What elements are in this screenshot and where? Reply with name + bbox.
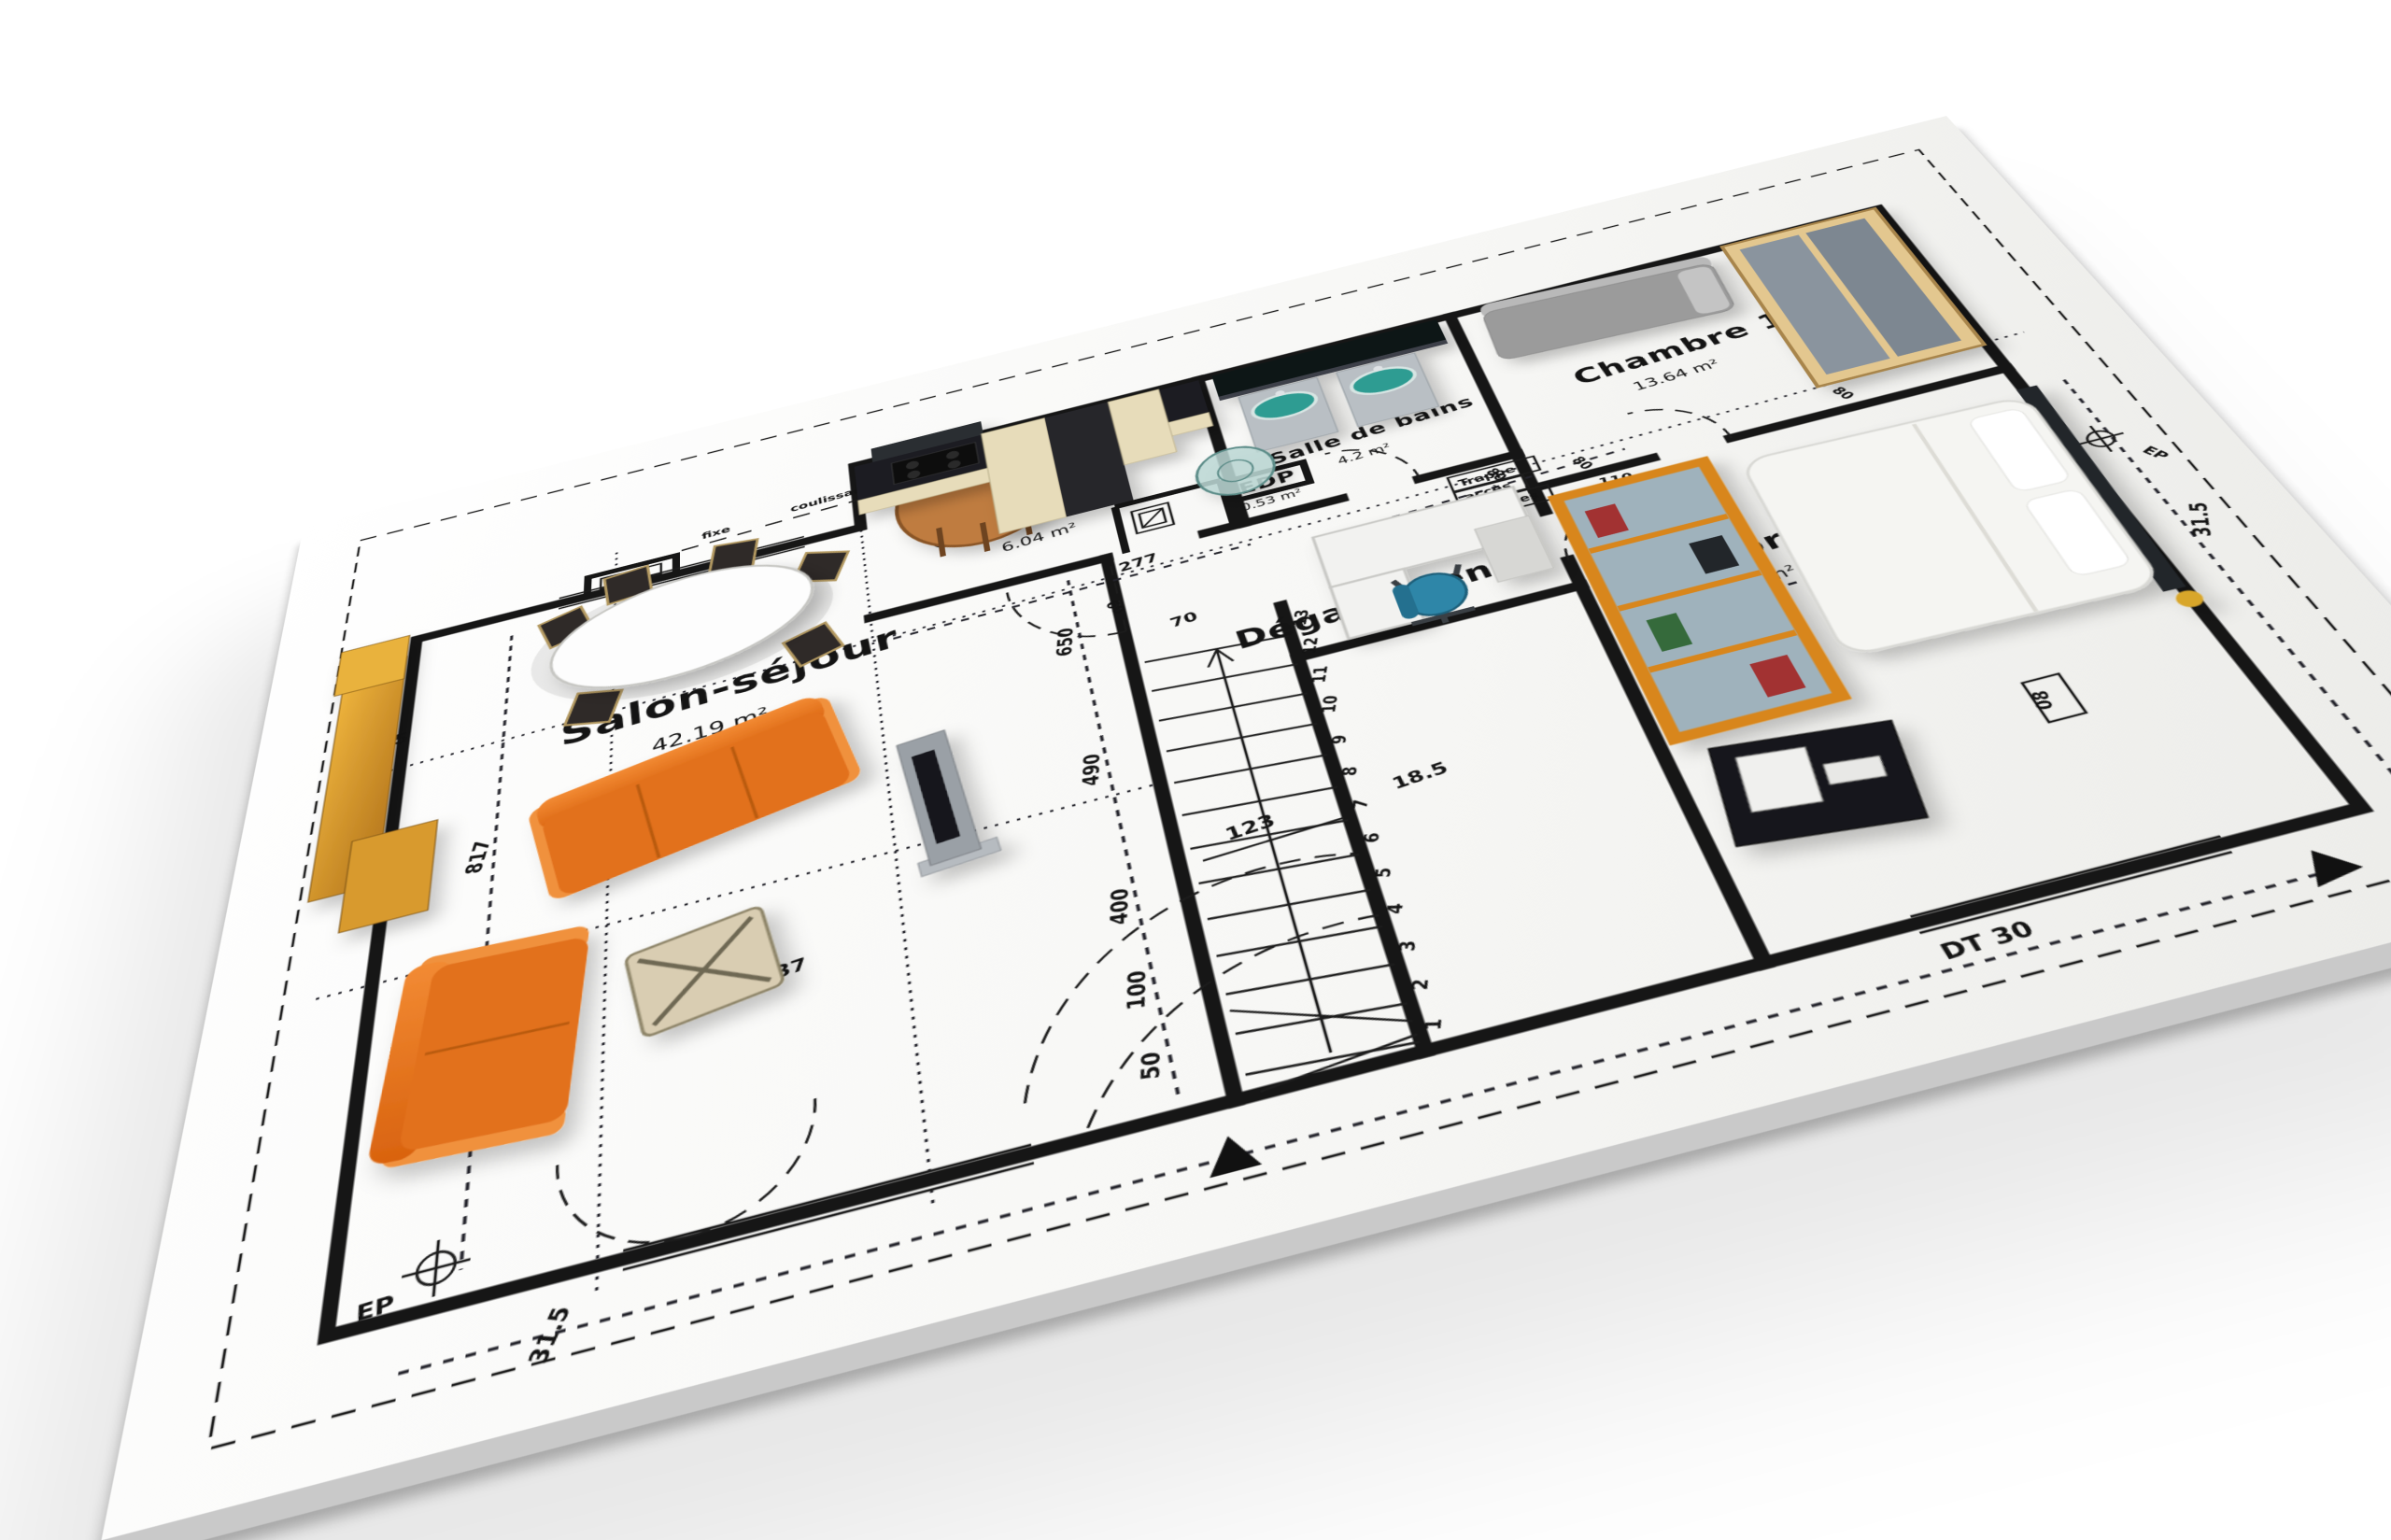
dim-label: 80: [1828, 386, 1857, 403]
boundary-frame: [208, 149, 2391, 1448]
dim-label: 31.5: [523, 1306, 577, 1365]
stair-step-number: 2: [1408, 979, 1434, 991]
ep-label: EP: [2139, 445, 2172, 463]
edp-hatch-icon: [1131, 502, 1174, 533]
dim-label: 100: [1123, 968, 1152, 1010]
stair-step-number: 8: [1338, 766, 1363, 776]
dim-label: 70: [1167, 609, 1200, 630]
boundary-triangle-icon: [2294, 841, 2370, 887]
stair-step-number: 10: [1318, 695, 1342, 713]
dim-label: 50: [1137, 1051, 1167, 1081]
dim-label: DT 30: [1935, 916, 2039, 965]
dim-label: 650: [1053, 627, 1079, 658]
boundary-triangle-icon: [1202, 1129, 1262, 1178]
computer-desk: [1708, 720, 1928, 847]
stair-step-number: 6: [1360, 832, 1384, 843]
stair-step-number: 9: [1327, 734, 1351, 744]
stair-step-number: 12: [1298, 637, 1323, 655]
dimension-line: [1068, 580, 1179, 1094]
dim-label: 490: [1079, 752, 1106, 787]
stair-step-number: 3: [1394, 940, 1421, 952]
dimension-line: [893, 544, 1252, 639]
stair-step-number: 1: [1421, 1019, 1447, 1031]
dim-label: 817: [460, 839, 497, 876]
canvas: 1 2 3 4 5 6 7 8 9 10 11 12 13 31.5 81: [0, 0, 2391, 1345]
wall-segment: [1107, 558, 1236, 1100]
blueprint-sheet: 1 2 3 4 5 6 7 8 9 10 11 12 13 31.5 81: [101, 116, 2391, 1540]
dim-label: 18.5: [1389, 758, 1451, 793]
stair-step-number: 7: [1349, 798, 1373, 809]
coffee-table: [625, 906, 785, 1038]
door-arc: [1628, 394, 1732, 458]
axis-line: [856, 482, 933, 1211]
tv-stand: [886, 725, 1001, 877]
stair-step-number: 11: [1308, 666, 1332, 685]
stair-step-number: 4: [1382, 903, 1408, 914]
dim-label: 400: [1106, 887, 1135, 926]
sofa-two-seat: [365, 924, 591, 1172]
dim-label: 31.5: [2185, 502, 2217, 537]
dim-label: 277: [1117, 551, 1161, 575]
shelving-unit: [292, 623, 459, 944]
dim-label: 08: [2027, 689, 2059, 711]
floor-plan: 1 2 3 4 5 6 7 8 9 10 11 12 13 31.5 81: [101, 116, 2391, 1540]
stair-treads: [1145, 627, 1420, 1086]
window-type-label: fixe: [701, 524, 731, 542]
stair-step-number: 5: [1371, 868, 1396, 879]
